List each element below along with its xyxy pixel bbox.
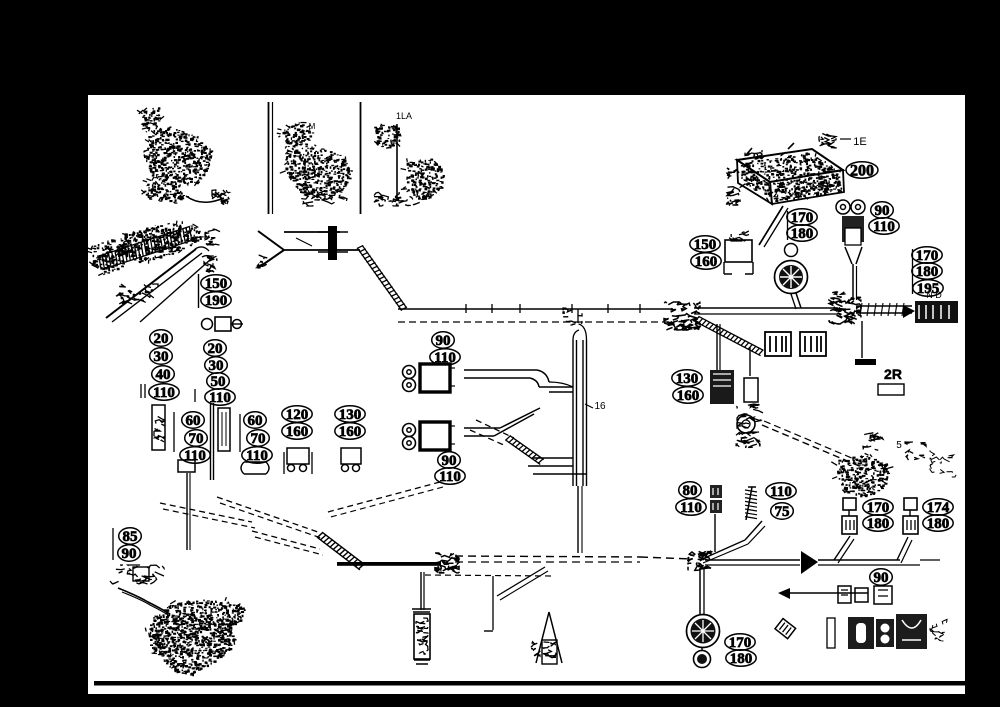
svg-text:180: 180	[927, 516, 950, 532]
svg-text:60: 60	[186, 413, 201, 429]
svg-text:70: 70	[189, 431, 204, 447]
svg-text:20: 20	[208, 341, 223, 357]
svg-text:40: 40	[156, 367, 171, 383]
svg-text:180: 180	[867, 516, 890, 532]
svg-text:180: 180	[916, 264, 939, 280]
svg-text:160: 160	[286, 424, 309, 440]
svg-text:80: 80	[683, 483, 698, 499]
svg-text:110: 110	[439, 469, 461, 485]
svg-text:130: 130	[676, 371, 699, 387]
svg-text:110: 110	[770, 484, 792, 500]
svg-text:110: 110	[209, 390, 231, 406]
svg-text:5: 5	[896, 440, 902, 451]
svg-text:90: 90	[442, 453, 457, 469]
svg-text:110: 110	[680, 500, 702, 516]
svg-text:130: 130	[339, 407, 362, 423]
svg-text:30: 30	[154, 349, 169, 365]
svg-text:70: 70	[251, 431, 266, 447]
svg-text:90: 90	[122, 546, 137, 562]
svg-text:90: 90	[874, 570, 889, 586]
svg-text:150: 150	[205, 276, 228, 292]
svg-text:50: 50	[211, 374, 226, 390]
svg-text:160: 160	[339, 424, 362, 440]
svg-text:200: 200	[850, 162, 874, 179]
svg-text:170: 170	[791, 210, 814, 226]
svg-text:20: 20	[154, 331, 169, 347]
svg-text:N D: N D	[926, 290, 942, 300]
svg-text:1E: 1E	[853, 136, 866, 148]
svg-text:120: 120	[286, 407, 309, 423]
svg-text:2R: 2R	[884, 366, 902, 382]
svg-text:174: 174	[927, 500, 950, 516]
svg-text:180: 180	[730, 651, 753, 667]
svg-text:1LA: 1LA	[396, 111, 412, 121]
svg-text:160: 160	[695, 254, 718, 270]
svg-text:85: 85	[123, 529, 138, 545]
svg-text:110: 110	[153, 385, 175, 401]
svg-text:75: 75	[775, 504, 790, 520]
svg-text:110: 110	[873, 219, 895, 235]
svg-text:60: 60	[248, 413, 263, 429]
svg-text:170: 170	[916, 248, 939, 264]
svg-text:16: 16	[594, 401, 606, 412]
svg-text:M: M	[309, 122, 316, 131]
svg-text:190: 190	[205, 293, 228, 309]
svg-text:90: 90	[436, 333, 451, 349]
svg-text:180: 180	[791, 226, 814, 242]
svg-text:170: 170	[729, 635, 752, 651]
svg-text:170: 170	[867, 500, 890, 516]
svg-text:30: 30	[209, 358, 224, 374]
svg-text:160: 160	[677, 388, 700, 404]
svg-text:150: 150	[694, 237, 717, 253]
svg-text:90: 90	[875, 203, 890, 219]
